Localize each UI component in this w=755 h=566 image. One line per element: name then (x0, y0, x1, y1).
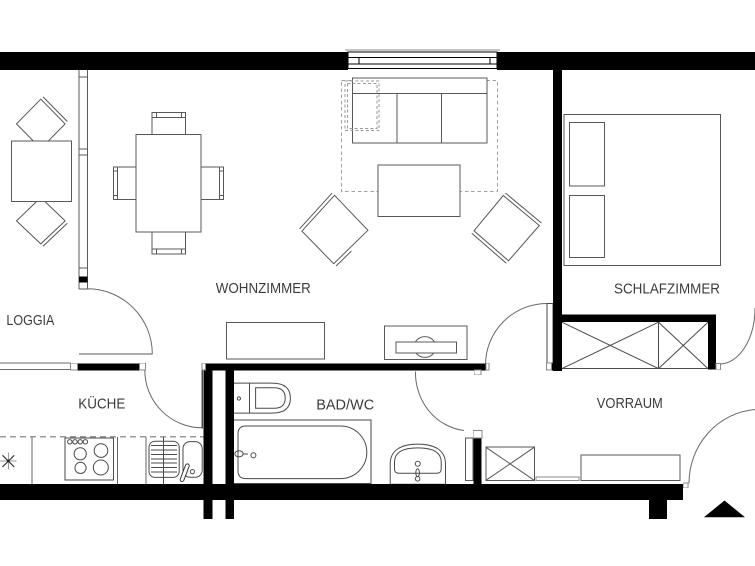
svg-text:KÜCHE: KÜCHE (78, 395, 125, 413)
svg-text:LOGGIA: LOGGIA (6, 312, 54, 329)
svg-text:SCHLAFZIMMER: SCHLAFZIMMER (614, 280, 720, 297)
svg-text:WOHNZIMMER: WOHNZIMMER (216, 280, 311, 297)
svg-text:VORRAUM: VORRAUM (597, 395, 663, 412)
svg-text:BAD/WC: BAD/WC (316, 396, 374, 413)
